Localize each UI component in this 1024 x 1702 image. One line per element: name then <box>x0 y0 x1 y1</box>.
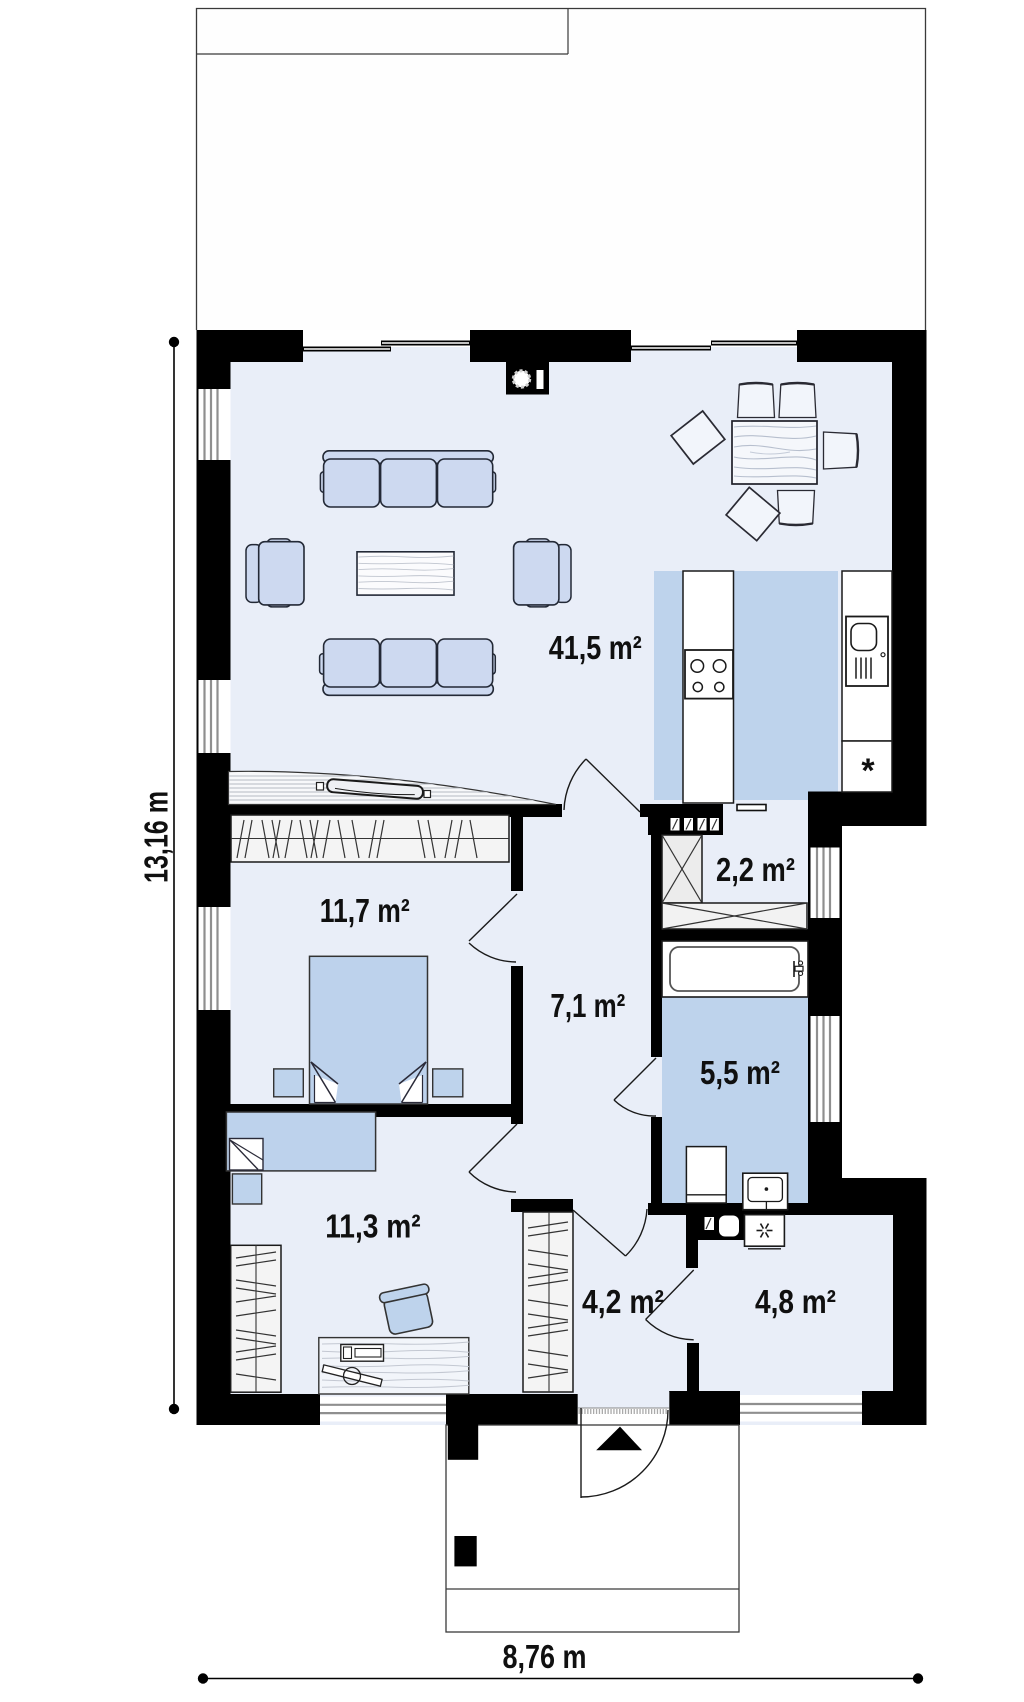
svg-text:2,2 m²: 2,2 m² <box>716 853 795 889</box>
svg-text:5,5 m²: 5,5 m² <box>700 1055 780 1092</box>
svg-text:11,3 m²: 11,3 m² <box>325 1208 420 1245</box>
svg-text:8,76 m: 8,76 m <box>503 1640 587 1676</box>
svg-text:4,2 m²: 4,2 m² <box>582 1283 664 1321</box>
svg-text:*: * <box>861 752 875 790</box>
svg-text:13,16 m: 13,16 m <box>138 791 175 883</box>
svg-text:4,8 m²: 4,8 m² <box>755 1284 836 1321</box>
svg-text:7,1 m²: 7,1 m² <box>550 988 625 1025</box>
svg-text:11,7 m²: 11,7 m² <box>320 893 410 929</box>
svg-text:41,5 m²: 41,5 m² <box>549 631 642 667</box>
